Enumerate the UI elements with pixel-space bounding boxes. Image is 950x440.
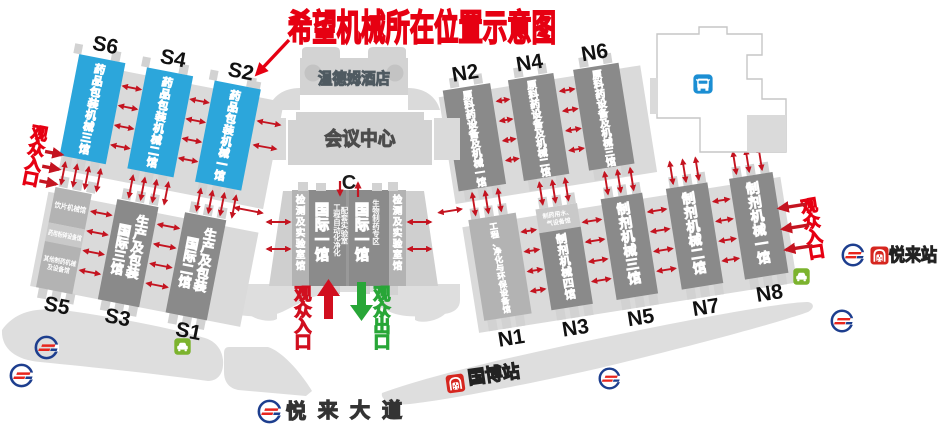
svg-text:S3: S3 [103, 304, 133, 331]
svg-text:S4: S4 [158, 45, 188, 73]
svg-text:N6: N6 [580, 39, 610, 66]
svg-text:N3: N3 [560, 315, 590, 342]
svg-text:S5: S5 [42, 292, 72, 320]
svg-text:希望机械所在位置示意图: 希望机械所在位置示意图 [288, 7, 556, 48]
svg-text:国际一馆: 国际一馆 [315, 202, 330, 264]
svg-text:悦来站: 悦来站 [889, 245, 937, 265]
svg-text:S2: S2 [226, 58, 256, 85]
svg-text:观众入口: 观众入口 [294, 285, 313, 352]
svg-text:温德姆酒店: 温德姆酒店 [317, 69, 390, 88]
svg-text:N2: N2 [450, 60, 480, 87]
svg-text:观众出口: 观众出口 [373, 285, 392, 352]
svg-text:C: C [342, 172, 356, 194]
svg-text:会议中心: 会议中心 [325, 127, 396, 150]
svg-text:生物制药专区: 生物制药专区 [372, 199, 380, 246]
svg-text:国际一馆: 国际一馆 [355, 202, 370, 264]
svg-text:N1: N1 [496, 325, 526, 352]
svg-text:S6: S6 [91, 32, 121, 59]
svg-text:N7: N7 [691, 294, 721, 321]
svg-text:检测及实验室馆: 检测及实验室馆 [393, 194, 403, 272]
svg-text:检测及实验室馆: 检测及实验室馆 [296, 194, 306, 272]
svg-text:配套实验室: 配套实验室 [340, 206, 349, 245]
svg-text:悦来大道: 悦来大道 [286, 398, 402, 423]
svg-text:观众入口: 观众入口 [21, 123, 50, 191]
svg-text:N5: N5 [626, 304, 656, 331]
svg-text:N8: N8 [754, 280, 784, 307]
svg-text:N4: N4 [514, 50, 544, 77]
